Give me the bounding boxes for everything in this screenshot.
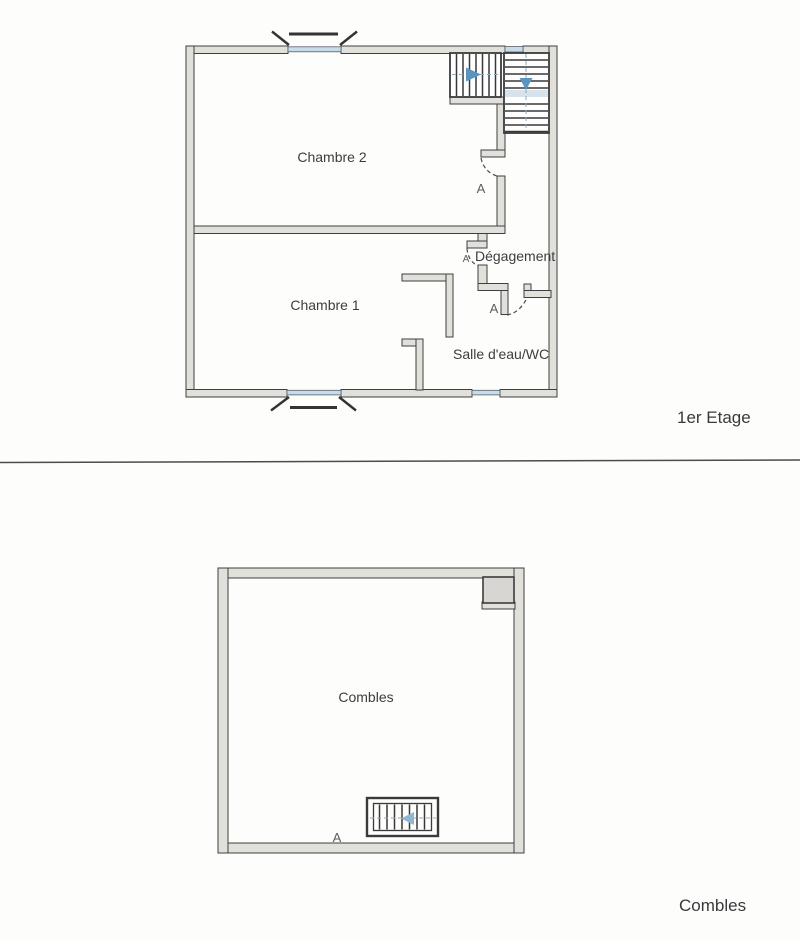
floor1-top-wall-left xyxy=(186,46,288,54)
chambre2-door-label: A xyxy=(477,181,486,196)
stairwell-window xyxy=(505,47,523,53)
floor1-left-wall xyxy=(186,46,194,397)
page-divider-line xyxy=(0,460,800,463)
combles-top-wall xyxy=(218,568,524,578)
salle-eau-door-jamb-left xyxy=(501,291,508,315)
salle-eau-right-wall xyxy=(524,291,551,298)
scanned-floor-plan-document: Chambre 2 Chambre 1 Dégagement Salle d'e… xyxy=(0,0,800,941)
combles-room-label: Combles xyxy=(338,689,393,705)
top-left-window xyxy=(288,47,341,52)
hatch-treads xyxy=(380,805,425,830)
chambre1-divider-wall-h1 xyxy=(402,274,453,281)
stair-bottom-wall xyxy=(450,97,505,104)
salle-eau-door-arc xyxy=(507,299,527,315)
floor-plan-drawing: Chambre 2 Chambre 1 Dégagement Salle d'e… xyxy=(0,0,800,941)
salle-eau-top-wall xyxy=(478,284,508,291)
degagement-door-label: A xyxy=(463,254,470,265)
floor1-right-wall xyxy=(549,46,557,397)
chambre2-label: Chambre 2 xyxy=(297,149,366,165)
degagement-jamb-foot xyxy=(467,241,487,248)
combles-right-wall xyxy=(514,568,524,853)
combles-left-wall xyxy=(218,568,228,853)
degagement-label: Dégagement xyxy=(475,248,555,264)
chambre1-divider-wall-v2 xyxy=(416,339,423,390)
floor1-caption: 1er Etage xyxy=(677,408,751,427)
bottom-left-window xyxy=(287,390,341,395)
chimney-block xyxy=(483,577,514,603)
combles-caption: Combles xyxy=(679,896,746,915)
roof-hatch xyxy=(367,798,438,836)
floor1-bottom-wall-left xyxy=(186,390,287,398)
bottom-right-window xyxy=(472,390,500,395)
combles-door-label: A xyxy=(333,830,342,845)
salle-eau-wc-label: Salle d'eau/WC xyxy=(453,346,549,362)
salle-eau-door-label: A xyxy=(490,301,499,316)
combles-plan: Combles A Combles xyxy=(218,568,746,915)
degagement-wall-lower xyxy=(478,265,487,284)
chambre2-right-wall-lower xyxy=(497,176,505,226)
floor1-plan: Chambre 2 Chambre 1 Dégagement Salle d'e… xyxy=(186,32,751,428)
chambre1-divider-wall-v1 xyxy=(446,274,453,337)
combles-bottom-wall xyxy=(218,843,524,853)
floor1-bottom-wall-mid xyxy=(341,390,472,398)
floor1-middle-wall xyxy=(194,226,505,234)
chambre2-door-jamb xyxy=(481,150,505,157)
chambre1-label: Chambre 1 xyxy=(290,297,359,313)
degagement-jamb-vertical xyxy=(478,234,487,242)
floor1-bottom-wall-right xyxy=(500,390,557,398)
chambre2-door-arc xyxy=(481,158,497,176)
